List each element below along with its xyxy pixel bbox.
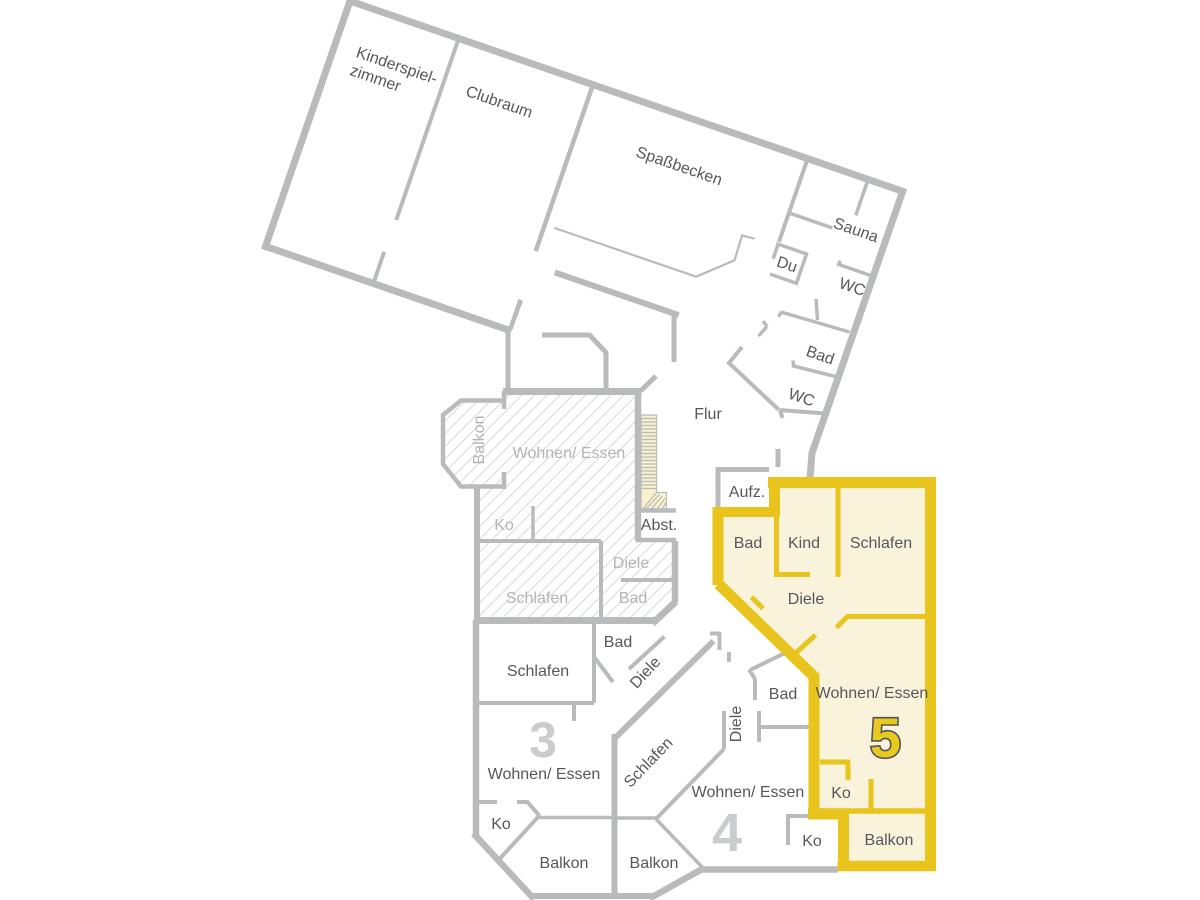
svg-text:Bad: Bad	[734, 535, 762, 552]
svg-text:Bad: Bad	[619, 590, 647, 607]
svg-text:Diele: Diele	[728, 706, 745, 743]
svg-text:Balkon: Balkon	[471, 416, 488, 465]
svg-text:Schlafen: Schlafen	[506, 590, 568, 607]
svg-text:5: 5	[870, 706, 901, 769]
svg-text:Aufz.: Aufz.	[729, 484, 765, 501]
svg-text:3: 3	[529, 712, 557, 768]
svg-text:Kind: Kind	[788, 535, 820, 552]
svg-text:Bad: Bad	[769, 686, 797, 703]
svg-text:Diele: Diele	[613, 555, 650, 572]
svg-text:Balkon: Balkon	[630, 855, 679, 872]
svg-text:Abst.: Abst.	[641, 517, 677, 534]
svg-text:Wohnen/ Essen: Wohnen/ Essen	[816, 685, 929, 702]
svg-text:Ko: Ko	[831, 785, 851, 802]
svg-text:Ko: Ko	[802, 833, 822, 850]
svg-text:Schlafen: Schlafen	[507, 663, 569, 680]
svg-text:Wohnen/ Essen: Wohnen/ Essen	[488, 766, 601, 783]
svg-text:Diele: Diele	[788, 591, 825, 608]
svg-text:Wohnen/ Essen: Wohnen/ Essen	[692, 784, 805, 801]
svg-text:Bad: Bad	[604, 634, 632, 651]
svg-text:Balkon: Balkon	[865, 832, 914, 849]
svg-text:Ko: Ko	[494, 517, 514, 534]
svg-text:Schlafen: Schlafen	[850, 535, 912, 552]
svg-text:Wohnen/ Essen: Wohnen/ Essen	[513, 445, 626, 462]
svg-text:Ko: Ko	[491, 816, 511, 833]
svg-text:Flur: Flur	[694, 406, 722, 423]
svg-text:Balkon: Balkon	[540, 855, 589, 872]
svg-text:4: 4	[712, 803, 742, 863]
